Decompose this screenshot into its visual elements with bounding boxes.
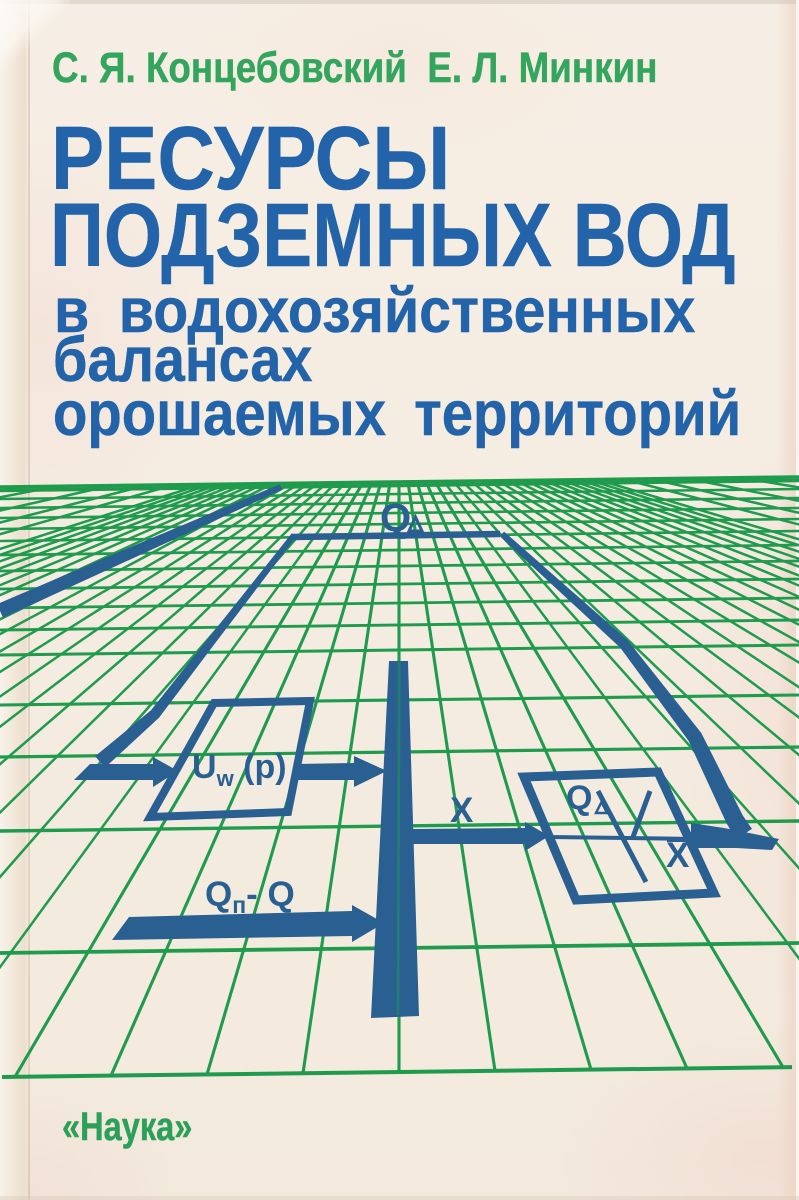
svg-text:X: X	[450, 791, 474, 830]
svg-text:Q: Q	[566, 779, 592, 817]
svg-text:Q: Q	[380, 496, 411, 540]
svg-text:Uw (p): Uw (p)	[192, 748, 287, 791]
svg-text:Qп- Q: Qп- Q	[205, 875, 295, 918]
